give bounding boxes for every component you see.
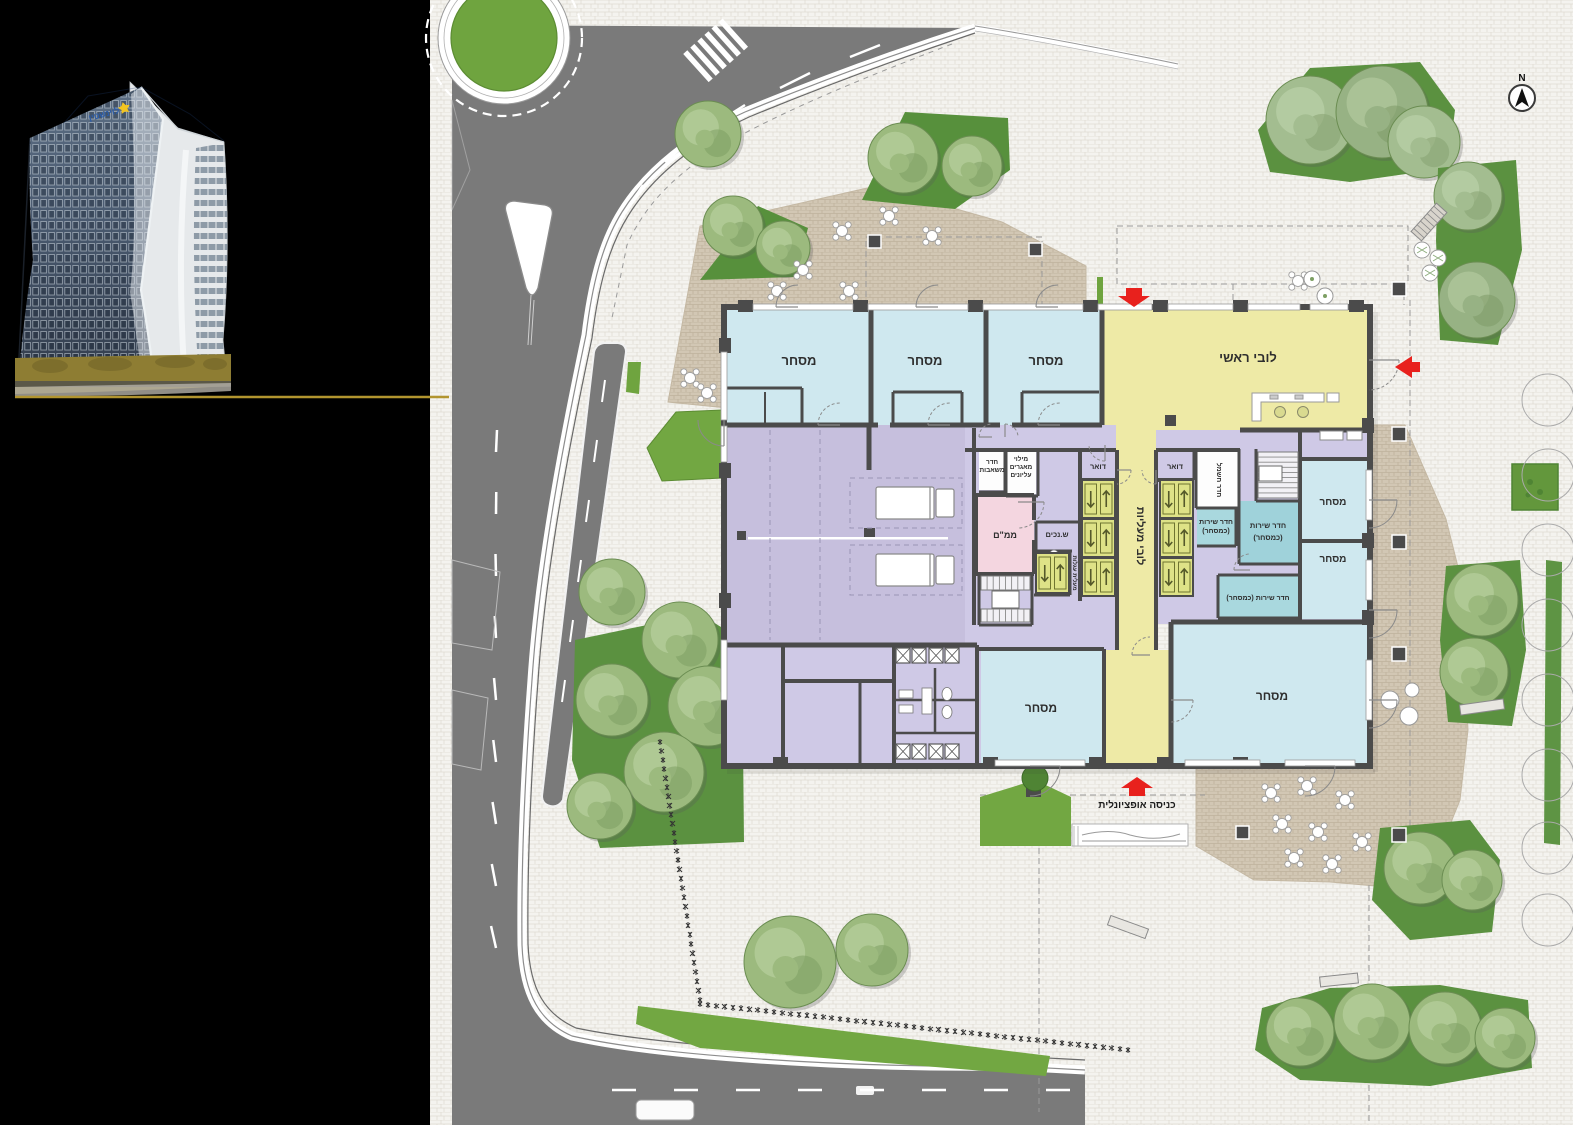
svg-text:חדר שירות (כמסחר): חדר שירות (כמסחר) — [1226, 595, 1289, 602]
svg-text:לובי מעליות: לובי מעליות — [1134, 507, 1147, 566]
svg-text:(כמסחר): (כמסחר) — [1253, 533, 1283, 542]
svg-text:לובי ראשי: לובי ראשי — [1219, 350, 1277, 365]
svg-text:(כמסחר): (כמסחר) — [1202, 528, 1229, 535]
svg-text:חדר שירות: חדר שירות — [1250, 521, 1286, 530]
svg-text:ש.נכים: ש.נכים — [1045, 530, 1068, 539]
svg-text:חדר: חדר — [986, 459, 999, 466]
svg-text:משאבות: משאבות — [979, 467, 1004, 474]
svg-text:מסחר: מסחר — [1320, 554, 1347, 565]
svg-text:N: N — [1518, 73, 1525, 84]
svg-text:מסחר: מסחר — [782, 353, 817, 368]
svg-text:דואר: דואר — [1090, 462, 1107, 471]
svg-text:מסחר: מסחר — [1025, 701, 1057, 715]
svg-text:חדר שירות: חדר שירות — [1199, 519, 1233, 526]
svg-text:מסחר: מסחר — [1029, 353, 1064, 368]
svg-text:מסחר: מסחר — [1320, 497, 1347, 508]
svg-text:חדר חשמל: חדר חשמל — [1215, 463, 1223, 498]
svg-text:מסחר: מסחר — [1256, 689, 1288, 703]
svg-text:עליונים: עליונים — [1011, 471, 1032, 479]
svg-text:מעלית עגלות: מעלית עגלות — [1071, 555, 1079, 590]
svg-text:ממ"ם: ממ"ם — [993, 530, 1017, 540]
svg-text:מאגרים: מאגרים — [1010, 464, 1033, 471]
svg-text:דואר: דואר — [1167, 462, 1184, 471]
svg-text:מסחר: מסחר — [908, 353, 943, 368]
svg-text:מילוי: מילוי — [1014, 455, 1029, 463]
svg-text:כניסה אופציונלית: כניסה אופציונלית — [1098, 799, 1175, 811]
